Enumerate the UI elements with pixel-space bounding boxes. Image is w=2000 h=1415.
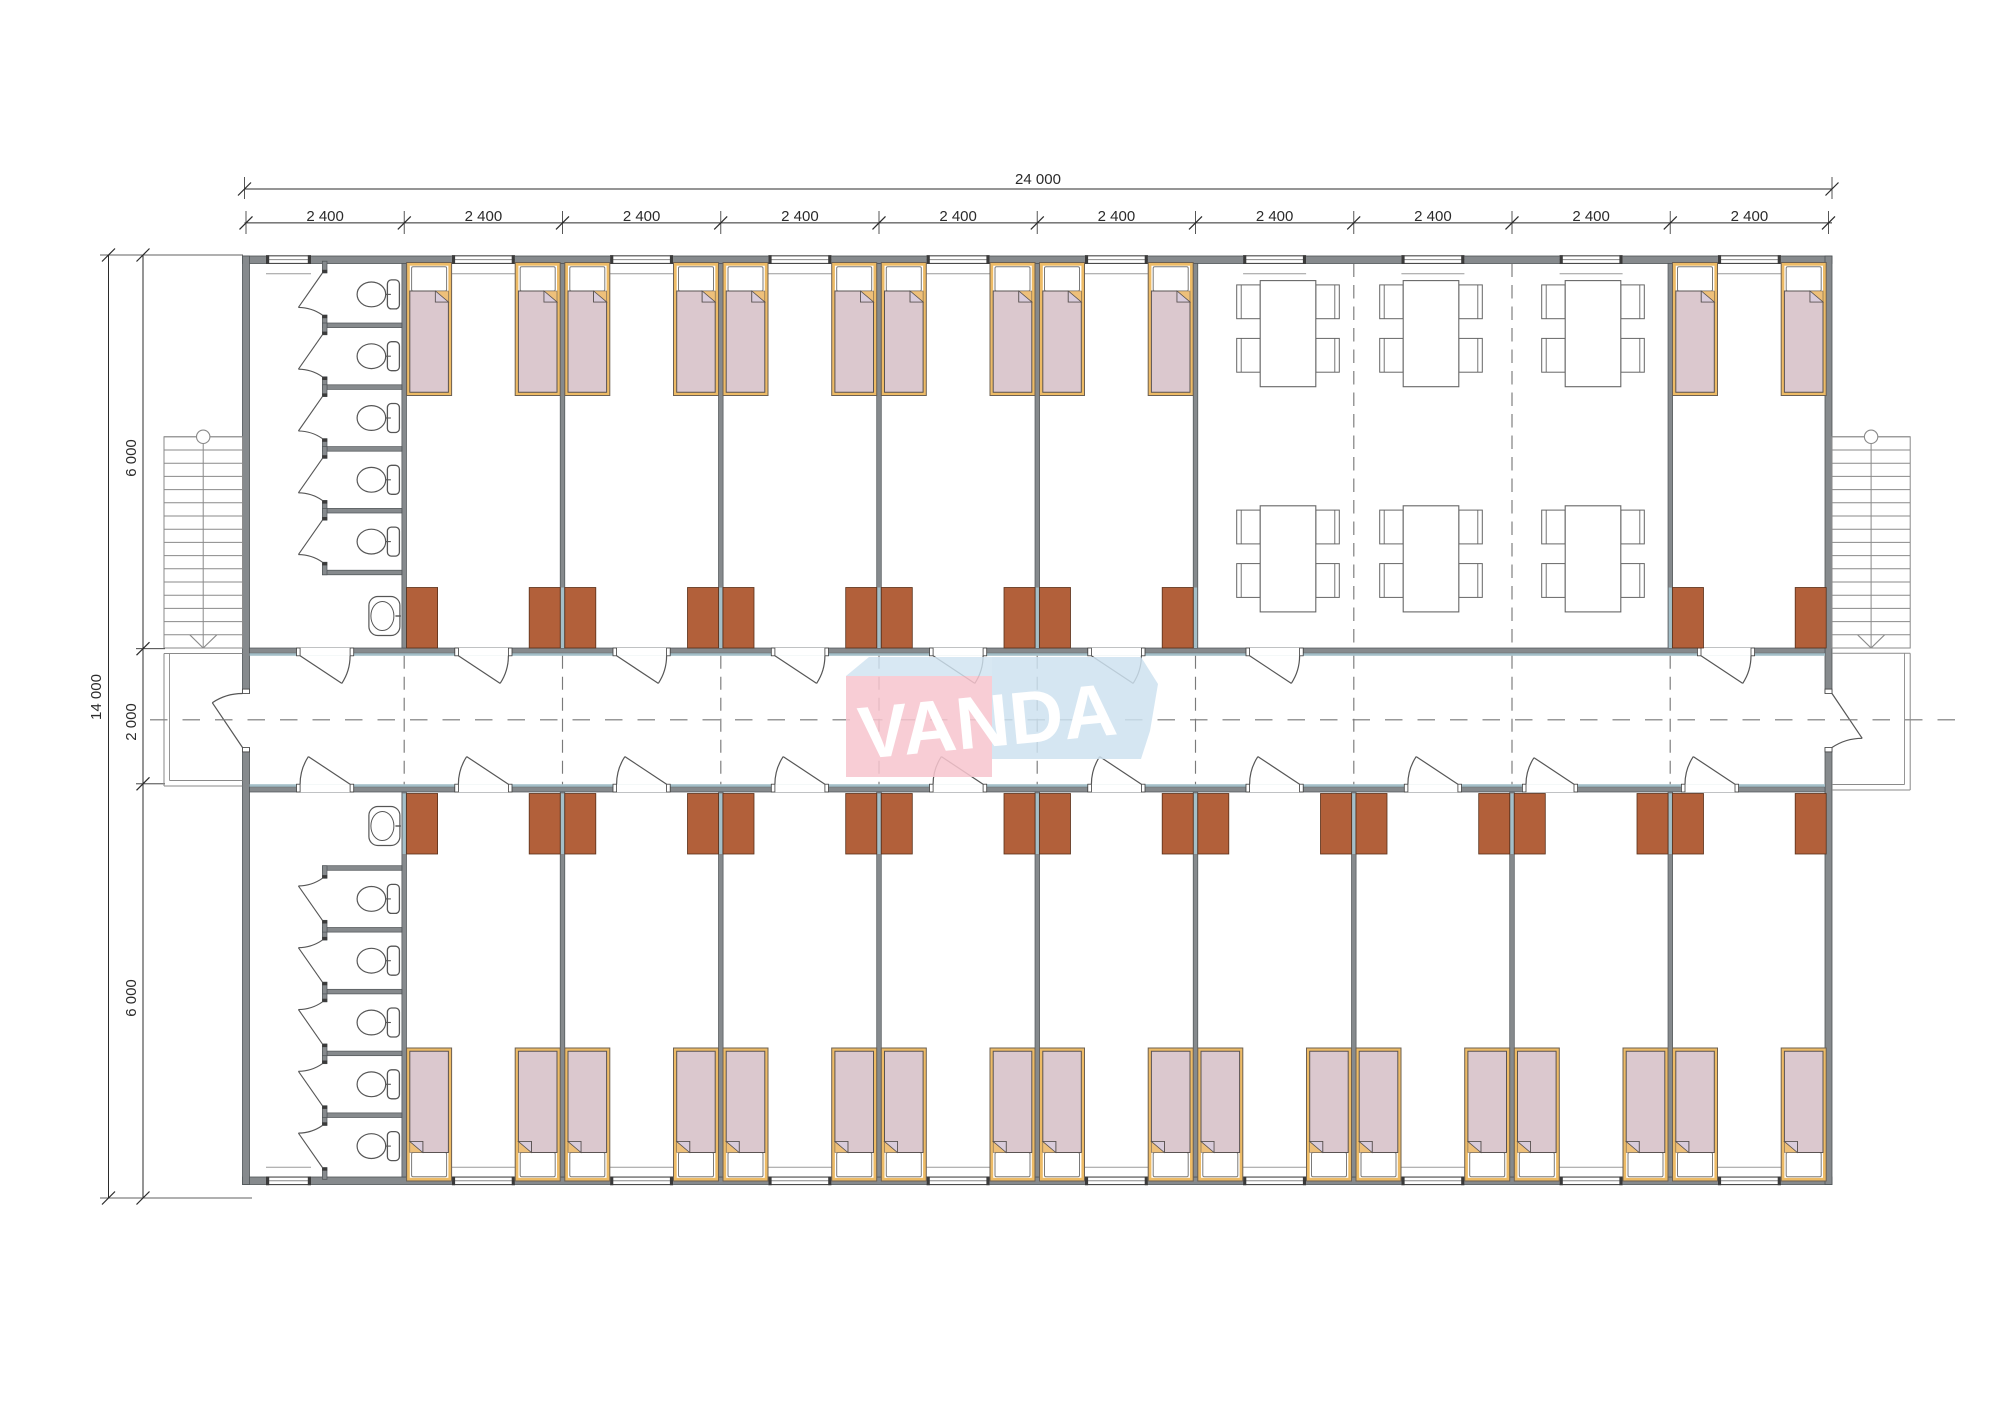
svg-text:2 400: 2 400 <box>1098 208 1136 225</box>
svg-text:2 400: 2 400 <box>781 208 819 225</box>
svg-text:2 400: 2 400 <box>1572 208 1610 225</box>
svg-text:6 000: 6 000 <box>123 979 140 1017</box>
svg-text:24 000: 24 000 <box>1015 171 1061 188</box>
svg-text:2 400: 2 400 <box>623 208 661 225</box>
svg-text:6 000: 6 000 <box>123 439 140 477</box>
svg-text:2 400: 2 400 <box>1731 208 1769 225</box>
svg-text:2 400: 2 400 <box>939 208 977 225</box>
svg-text:2 000: 2 000 <box>123 703 140 741</box>
svg-text:2 400: 2 400 <box>465 208 503 225</box>
svg-text:14 000: 14 000 <box>88 674 105 720</box>
svg-text:2 400: 2 400 <box>306 208 344 225</box>
svg-text:2 400: 2 400 <box>1256 208 1294 225</box>
svg-text:2 400: 2 400 <box>1414 208 1452 225</box>
